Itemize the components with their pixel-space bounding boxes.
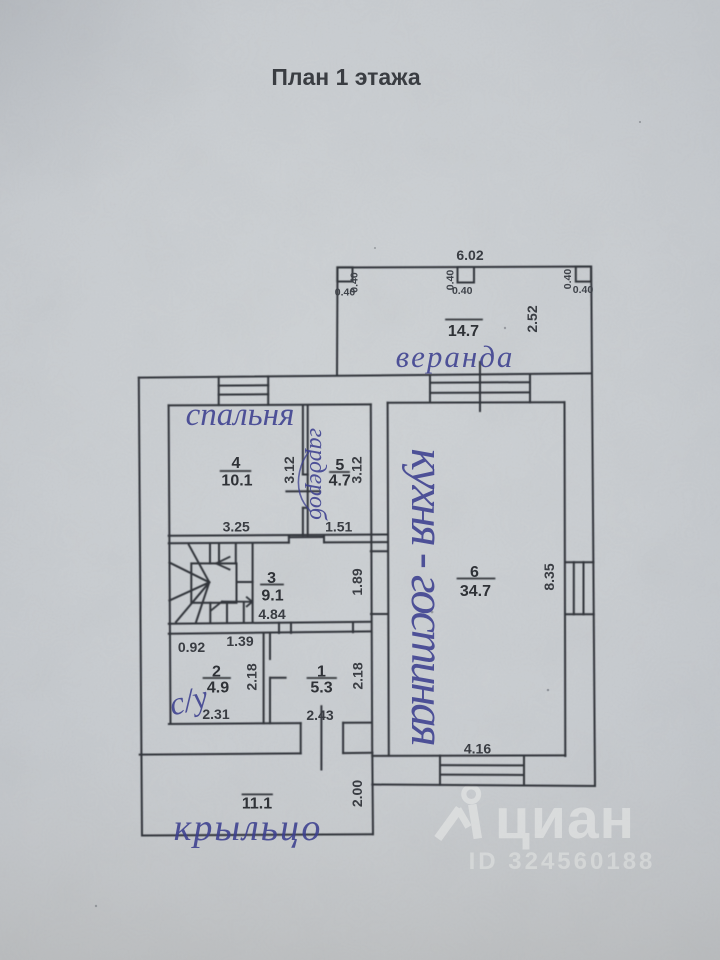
svg-text:План 1 этажа: План 1 этажа bbox=[271, 64, 420, 90]
svg-text:0.92: 0.92 bbox=[178, 639, 205, 655]
svg-text:3.12: 3.12 bbox=[281, 456, 297, 483]
svg-text:циан: циан bbox=[495, 787, 635, 851]
svg-text:2: 2 bbox=[212, 664, 221, 681]
svg-text:34.7: 34.7 bbox=[460, 583, 491, 600]
svg-text:6.02: 6.02 bbox=[456, 247, 483, 263]
svg-text:2.43: 2.43 bbox=[306, 707, 333, 723]
svg-text:4.84: 4.84 bbox=[258, 606, 285, 622]
svg-text:14.7: 14.7 bbox=[448, 323, 479, 340]
svg-text:4: 4 bbox=[232, 455, 241, 472]
svg-text:8.35: 8.35 bbox=[541, 563, 557, 590]
svg-text:4.16: 4.16 bbox=[464, 741, 491, 757]
svg-text:2.52: 2.52 bbox=[524, 305, 540, 332]
svg-text:5.3: 5.3 bbox=[310, 680, 332, 697]
svg-text:3.25: 3.25 bbox=[223, 519, 250, 535]
svg-text:2.18: 2.18 bbox=[350, 662, 366, 689]
svg-text:1.89: 1.89 bbox=[349, 568, 365, 595]
svg-text:1.39: 1.39 bbox=[226, 633, 253, 649]
svg-text:кухня - гостиная: кухня - гостиная bbox=[401, 448, 454, 745]
svg-text:крыльцо: крыльцо bbox=[174, 807, 323, 849]
svg-text:3: 3 bbox=[267, 570, 276, 587]
svg-text:5: 5 bbox=[335, 457, 344, 474]
svg-text:гардероб: гардероб bbox=[304, 428, 330, 521]
svg-text:ID 324560188: ID 324560188 bbox=[469, 848, 656, 875]
svg-text:4.9: 4.9 bbox=[207, 680, 229, 697]
svg-text:9.1: 9.1 bbox=[261, 588, 283, 605]
svg-text:0.40: 0.40 bbox=[573, 284, 594, 296]
svg-text:1.51: 1.51 bbox=[325, 519, 352, 535]
svg-text:2.18: 2.18 bbox=[244, 663, 260, 690]
svg-text:2.00: 2.00 bbox=[349, 780, 365, 807]
svg-text:веранда: веранда bbox=[396, 339, 515, 374]
svg-text:0.40: 0.40 bbox=[335, 287, 356, 299]
svg-text:0.40: 0.40 bbox=[452, 285, 473, 297]
svg-text:6: 6 bbox=[470, 564, 479, 581]
svg-text:3.12: 3.12 bbox=[349, 456, 365, 483]
svg-text:10.1: 10.1 bbox=[221, 473, 252, 490]
svg-text:спальня: спальня bbox=[186, 397, 295, 433]
svg-text:1: 1 bbox=[317, 664, 326, 681]
